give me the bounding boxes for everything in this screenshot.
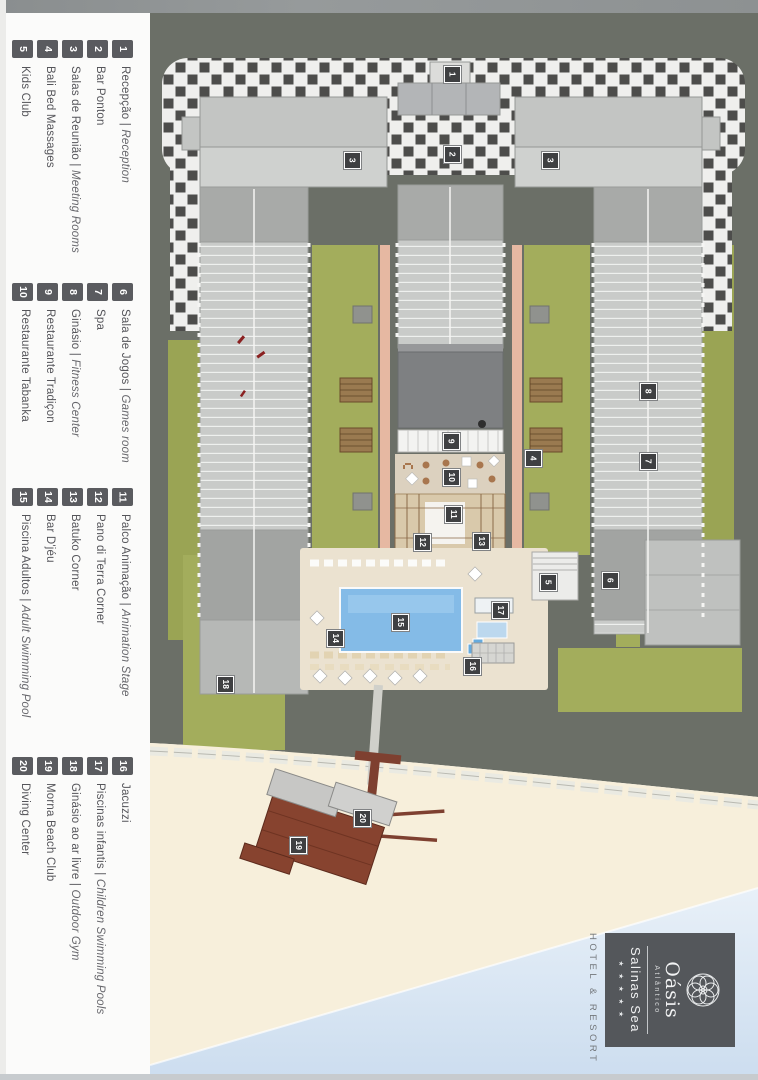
legend-number-badge: 13 (62, 488, 83, 506)
map-marker: 3 (542, 152, 559, 169)
map-marker: 8 (640, 383, 657, 400)
legend-label: Bali Bed Massages (44, 66, 56, 168)
legend-label: Jacuzzi (119, 783, 131, 823)
legend-number-badge: 1 (112, 40, 133, 58)
legend-item: 4 Bali Bed Massages (37, 40, 59, 58)
map-marker: 18 (217, 676, 234, 693)
resort-name: Salinas Sea (628, 947, 643, 1033)
legend-item: 7 Spa (87, 283, 109, 301)
map-marker: 19 (290, 837, 307, 854)
legend-label: Diving Center (19, 783, 31, 855)
legend-label: Restaurante Tabanka (19, 309, 31, 422)
legend-item: 18 Ginásio ao ar livre | Outdoor Gym (62, 757, 84, 775)
legend-number-badge: 11 (112, 488, 133, 506)
legend-number-badge: 3 (62, 40, 83, 58)
map-marker: 20 (354, 810, 371, 827)
legend-number-badge: 5 (12, 40, 33, 58)
legend-number-badge: 18 (62, 757, 83, 775)
map-marker: 11 (445, 506, 462, 523)
map-marker: 6 (602, 572, 619, 589)
legend-label: Spa (94, 309, 106, 330)
legend-item: 16 Jacuzzi (112, 757, 134, 775)
map-marker: 1 (444, 66, 461, 83)
brand-name: Oásis (662, 961, 681, 1018)
legend-number-badge: 17 (87, 757, 108, 775)
star-rating: ★ ★ ★ ★ ★ (617, 961, 625, 1020)
legend-number-badge: 4 (37, 40, 58, 58)
legend-number-badge: 2 (87, 40, 108, 58)
map-marker: 10 (443, 469, 460, 486)
legend-item: 2 Bar Ponton (87, 40, 109, 58)
legend-item: 8 Ginásio | Fitness Center (62, 283, 84, 301)
map-marker: 12 (414, 534, 431, 551)
legend-number-badge: 15 (12, 488, 33, 506)
legend-item: 15 Piscina Adultos | Adult Swimming Pool (12, 488, 34, 506)
map-marker: 13 (473, 533, 490, 550)
resort-site-plan (150, 13, 758, 1080)
map-marker: 2 (444, 146, 461, 163)
scanned-resort-map-page: 12334567891011121314151617181920 1 Recep… (0, 0, 758, 1080)
legend-label: Restaurante Tradiçon (44, 309, 56, 423)
legend-item: 9 Restaurante Tradiçon (37, 283, 59, 301)
legend-number-badge: 12 (87, 488, 108, 506)
legend-label: Recepção | Reception (119, 66, 131, 183)
legend-number-badge: 8 (62, 283, 83, 301)
map-marker: 4 (525, 450, 542, 467)
legend-label: Morna Beach Club (44, 783, 56, 881)
legend-item: 17 Piscinas infantis | Children Swimming… (87, 757, 109, 775)
legend-label: Batuko Corner (69, 514, 81, 591)
legend-label: Ginásio | Fitness Center (69, 309, 81, 437)
legend-number-badge: 7 (87, 283, 108, 301)
legend-number-badge: 20 (12, 757, 33, 775)
brand-subname: Atlântico (653, 965, 660, 1014)
legend-item: 13 Batuko Corner (62, 488, 84, 506)
legend-item: 20 Diving Center (12, 757, 34, 775)
logo-divider (647, 946, 648, 1034)
legend-label: Palco Animação | Animation Stage (119, 514, 131, 697)
legend-item: 19 Morna Beach Club (37, 757, 59, 775)
legend-number-badge: 14 (37, 488, 58, 506)
legend-item: 11 Palco Animação | Animation Stage (112, 488, 134, 506)
legend-label: Bar Ponton (94, 66, 106, 126)
legend-item: 1 Recepção | Reception (112, 40, 134, 58)
map-marker: 14 (327, 630, 344, 647)
legend-label: Piscinas infantis | Children Swimming Po… (94, 783, 106, 1014)
scan-edge-bottom (0, 1074, 758, 1080)
legend-label: Bar D'jéu (44, 514, 56, 563)
legend-item: 12 Pano di Terra Corner (87, 488, 109, 506)
legend-label: Salas de Reunião | Meeting Rooms (69, 66, 81, 253)
legend-item: 14 Bar D'jéu (37, 488, 59, 506)
scan-edge-top (0, 0, 758, 13)
map-marker: 17 (492, 602, 509, 619)
legend-number-badge: 10 (12, 283, 33, 301)
map-marker: 3 (344, 152, 361, 169)
legend-label: Kids Club (19, 66, 31, 117)
scan-edge-left (0, 0, 6, 1080)
legend-label: Pano di Terra Corner (94, 514, 106, 625)
legend-number-badge: 16 (112, 757, 133, 775)
hotel-logo: Oásis Atlântico Salinas Sea ★ ★ ★ ★ ★ HO… (583, 933, 735, 1047)
legend-number-badge: 19 (37, 757, 58, 775)
legend-label: Sala de Jogos | Games room (119, 309, 131, 463)
map-marker: 16 (464, 658, 481, 675)
logo-square: Oásis Atlântico Salinas Sea ★ ★ ★ ★ ★ (605, 933, 735, 1047)
legend-item: 5 Kids Club (12, 40, 34, 58)
oasis-flower-icon (683, 970, 723, 1010)
map-marker: 7 (640, 453, 657, 470)
legend-item: 6 Sala de Jogos | Games room (112, 283, 134, 301)
legend-item: 3 Salas de Reunião | Meeting Rooms (62, 40, 84, 58)
legend-number-badge: 9 (37, 283, 58, 301)
legend-label: Ginásio ao ar livre | Outdoor Gym (69, 783, 81, 961)
legend-item: 10 Restaurante Tabanka (12, 283, 34, 301)
hotel-tagline: HOTEL & RESORT (587, 933, 598, 1047)
map-marker: 5 (540, 574, 557, 591)
map-marker: 15 (392, 614, 409, 631)
legend-label: Piscina Adultos | Adult Swimming Pool (19, 514, 31, 717)
map-marker: 9 (443, 433, 460, 450)
legend-number-badge: 6 (112, 283, 133, 301)
